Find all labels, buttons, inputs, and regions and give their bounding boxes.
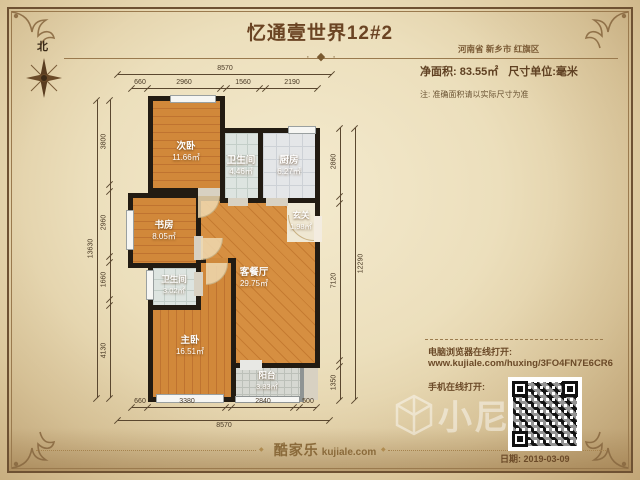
room-label-living-dining: 客餐厅29.75㎡ <box>224 264 284 289</box>
window <box>288 126 316 134</box>
room-label-second-bedroom: 次卧11.66㎡ <box>156 138 216 163</box>
qr-code <box>508 377 582 451</box>
dim-label: 2190 <box>272 78 312 87</box>
footer-rule-left <box>36 450 256 451</box>
dim-label: 660 <box>126 397 154 406</box>
dim-tick <box>351 397 358 404</box>
unit-label: 尺寸单位:毫米 <box>508 66 578 78</box>
dim-label: 1350 <box>330 363 339 403</box>
dim-line-top-total <box>118 74 332 75</box>
dim-line-left-segments <box>110 100 111 398</box>
net-area-value: 净面积: 83.55㎡ <box>420 66 498 78</box>
dim-label: 2860 <box>330 142 339 182</box>
watermark-text: 小尼 <box>438 390 510 439</box>
share-url: www.kujiale.com/huxing/3FO4FN7E6CR6 <box>428 358 613 369</box>
kujiale-logo: 酷家乐kujiale.com <box>262 440 388 460</box>
location-text: 河南省 新乡市 红旗区 <box>458 43 539 55</box>
room-label-master-bedroom: 主卧16.51㎡ <box>160 332 220 357</box>
dim-label: 3380 <box>167 397 207 406</box>
dim-tick <box>106 395 113 402</box>
pc-open-label: 电脑浏览器在线打开: <box>428 345 512 358</box>
north-label: 北 <box>37 38 48 54</box>
watermark: 小尼 <box>394 390 510 439</box>
dim-label: 4130 <box>100 331 109 371</box>
area-info: 净面积: 83.55㎡尺寸单位:毫米 <box>420 63 588 79</box>
dim-label: 2840 <box>243 397 283 406</box>
dim-tick <box>326 417 333 424</box>
page-title: 忆通壹世界12#2 <box>0 18 640 45</box>
room-label-bathroom-2: 卫生间3.02㎡ <box>144 273 204 296</box>
dim-tick <box>314 85 321 92</box>
door-opening <box>266 198 288 206</box>
dim-label: 2960 <box>164 78 204 87</box>
door-opening <box>228 198 248 206</box>
dim-label: 1660 <box>100 260 109 300</box>
window <box>126 210 134 250</box>
room-label-balcony: 阳台3.83㎡ <box>237 369 297 392</box>
qr-finder-icon <box>512 381 528 397</box>
dim-line-left-total <box>97 100 98 398</box>
dim-label: 8570 <box>204 421 244 430</box>
room-label-entry: 玄关1.98㎡ <box>271 209 331 232</box>
compass-icon <box>24 56 64 105</box>
dim-tick <box>328 71 335 78</box>
room-label-kitchen: 厨房6.27㎡ <box>259 152 319 177</box>
window <box>170 95 216 103</box>
dim-label: 500 <box>294 397 322 406</box>
info-separator <box>425 339 603 340</box>
dim-label: 1560 <box>223 78 263 87</box>
qr-finder-icon <box>512 431 528 447</box>
room-label-study: 书房8.05㎡ <box>134 217 194 242</box>
date-text: 日期: 2019-03-09 <box>500 452 570 465</box>
logo-chinese: 酷家乐 <box>274 442 319 458</box>
dim-label: 3800 <box>100 122 109 162</box>
disclaimer-note: 注: 准确面积请以实际尺寸为准 <box>420 89 528 100</box>
dim-label: 660 <box>126 78 154 87</box>
dim-label: 12290 <box>357 244 366 284</box>
dim-label: 13630 <box>87 229 96 269</box>
dim-tick <box>93 395 100 402</box>
divider-ornament-icon: · ◆ · <box>294 50 350 63</box>
qr-finder-icon <box>562 381 578 397</box>
dim-label: 8570 <box>205 64 245 73</box>
cube-logo-icon <box>394 393 434 437</box>
dim-label: 7120 <box>330 261 339 301</box>
door-opening <box>198 188 220 196</box>
logo-domain: kujiale.com <box>322 447 376 458</box>
dim-label: 2960 <box>100 203 109 243</box>
floorplan-sheet: · ◆ · 忆通壹世界12#2 河南省 新乡市 红旗区 北 净面积: 83.55… <box>0 0 640 480</box>
